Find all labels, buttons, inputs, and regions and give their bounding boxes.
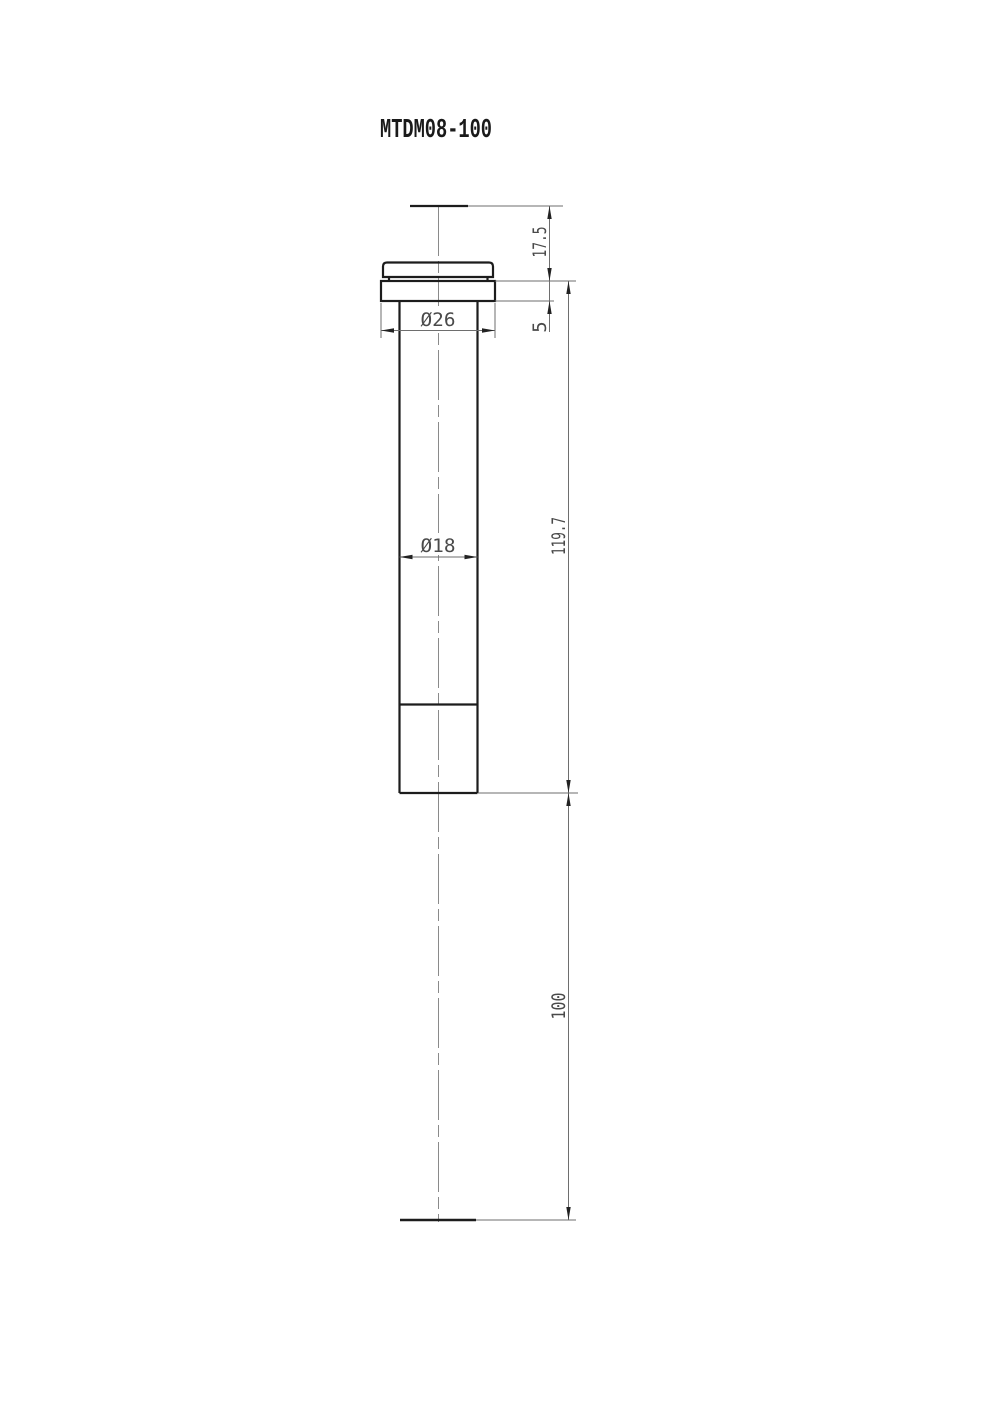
dim-label-d18: Ø18: [421, 535, 456, 557]
drawing-sheet: MTDM08-100: [0, 0, 992, 1403]
dim-label-119-7: 119.7: [548, 517, 570, 555]
dim-label-17-5: 17.5: [529, 227, 551, 258]
cad-drawing: MTDM08-100: [0, 0, 992, 1403]
dim-label-100: 100: [548, 993, 570, 1020]
dim-label-d26: Ø26: [421, 309, 456, 331]
part-number-title: MTDM08-100: [380, 116, 492, 146]
sheet-background: [0, 0, 992, 1403]
dim-label-5: 5: [529, 321, 551, 332]
